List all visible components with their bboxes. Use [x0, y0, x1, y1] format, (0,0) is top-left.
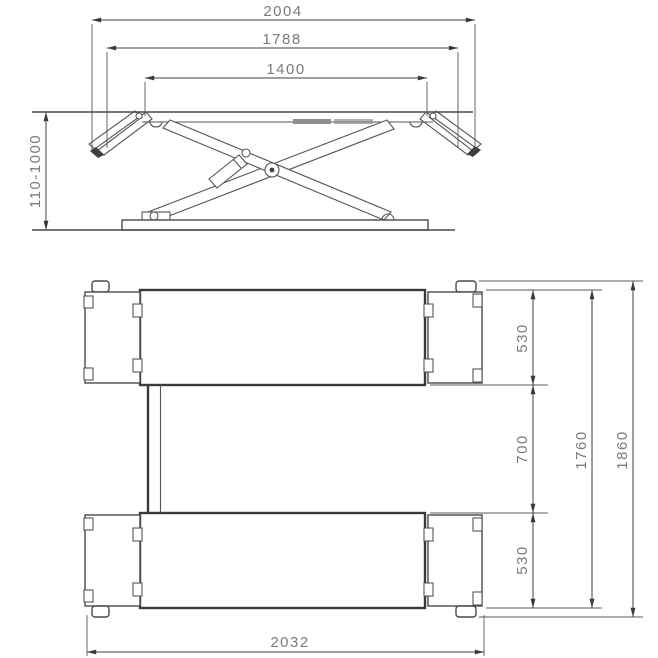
dim-platform-top-label: 530: [514, 323, 531, 353]
ramp-tab: [456, 281, 476, 292]
dim-overall-width-label: 2004: [263, 3, 302, 20]
dim-height-range-label: 110-1000: [27, 134, 44, 208]
dimension-center-gap-700: 700: [514, 385, 533, 513]
dimension-rail-outer-1788: 1788: [107, 31, 458, 148]
dimension-height-range-110-1000: 110-1000: [27, 112, 46, 230]
dim-center-gap-label: 700: [514, 434, 531, 464]
ramp-hinge-clip: [133, 583, 142, 596]
ramp-tab: [92, 606, 109, 617]
cylinder-rod-pin: [242, 149, 250, 157]
ramp-tab: [456, 606, 476, 617]
dim-overall-span-label: 1860: [614, 430, 631, 469]
ramp-clip: [84, 296, 93, 308]
ramp-lower-left: [84, 515, 142, 617]
ramp-hinge-clip: [424, 359, 433, 372]
dim-base-length-label: 2032: [270, 634, 309, 651]
ramp-clip: [84, 518, 93, 530]
ramp-clip: [84, 590, 93, 602]
side-elevation-view: 2004 1788 1400 110-1000: [27, 3, 481, 230]
cross-tube-channel: [148, 385, 161, 513]
dimension-base-length-2032: 2032: [87, 615, 484, 656]
flap-hinge-pin: [136, 113, 142, 119]
ramp-clip: [84, 368, 93, 380]
flap-hinge-pin: [430, 113, 436, 119]
scissor-lift-side-geometry: [32, 111, 481, 230]
ramp-upper-left: [84, 281, 142, 383]
ramp-upper-right: [424, 281, 482, 383]
base-plate: [122, 220, 428, 230]
drive-on-flap-right: [420, 111, 481, 157]
ramp-hinge-clip: [424, 583, 433, 596]
dimension-platform-top-530: 530: [514, 290, 533, 385]
dim-rail-inner-label: 1400: [266, 61, 305, 78]
drawing-svg: 2004 1788 1400 110-1000: [0, 0, 658, 658]
plan-view: 530 700 530 1760 1860 2032: [84, 281, 643, 656]
dimension-rail-inner-1400: 1400: [145, 61, 427, 116]
ramp-hinge-clip: [424, 528, 433, 541]
platform-top-plan: [140, 290, 425, 385]
base-frame: [32, 212, 455, 230]
dim-platform-bottom-label: 530: [514, 545, 531, 575]
ramp-hinge-clip: [133, 359, 142, 372]
ramp-hinge-clip: [424, 304, 433, 317]
scissor-mechanism: [148, 120, 394, 221]
ramp-clip: [473, 294, 482, 307]
dim-rail-outer-label: 1788: [262, 31, 301, 48]
dimension-platform-bottom-530: 530: [514, 513, 533, 608]
technical-drawing-scissor-lift: 2004 1788 1400 110-1000: [0, 0, 658, 658]
ramp-hinge-clip: [133, 304, 142, 317]
ramp-lower-right: [424, 515, 482, 617]
ramp-hinge-clip: [133, 528, 142, 541]
ramp-clip: [473, 592, 482, 605]
dim-platforms-span-label: 1760: [573, 430, 590, 469]
ramp-clip: [473, 518, 482, 531]
center-pivot-pin: [270, 168, 275, 173]
dimension-overall-span-1860: 1860: [614, 281, 633, 617]
ramp-tab: [92, 281, 109, 292]
platform-hinge-notch-right: [410, 122, 422, 127]
dimension-platforms-span-1760: 1760: [573, 290, 592, 608]
ramp-clip: [473, 369, 482, 382]
platform-hinge-notch-left: [150, 122, 162, 127]
flap-blade: [89, 111, 142, 151]
roller-left: [150, 212, 158, 220]
platform-bottom-plan: [140, 513, 425, 608]
drive-on-flap-left: [89, 111, 152, 158]
platform-pad: [293, 119, 331, 124]
platform-pad: [334, 119, 373, 124]
